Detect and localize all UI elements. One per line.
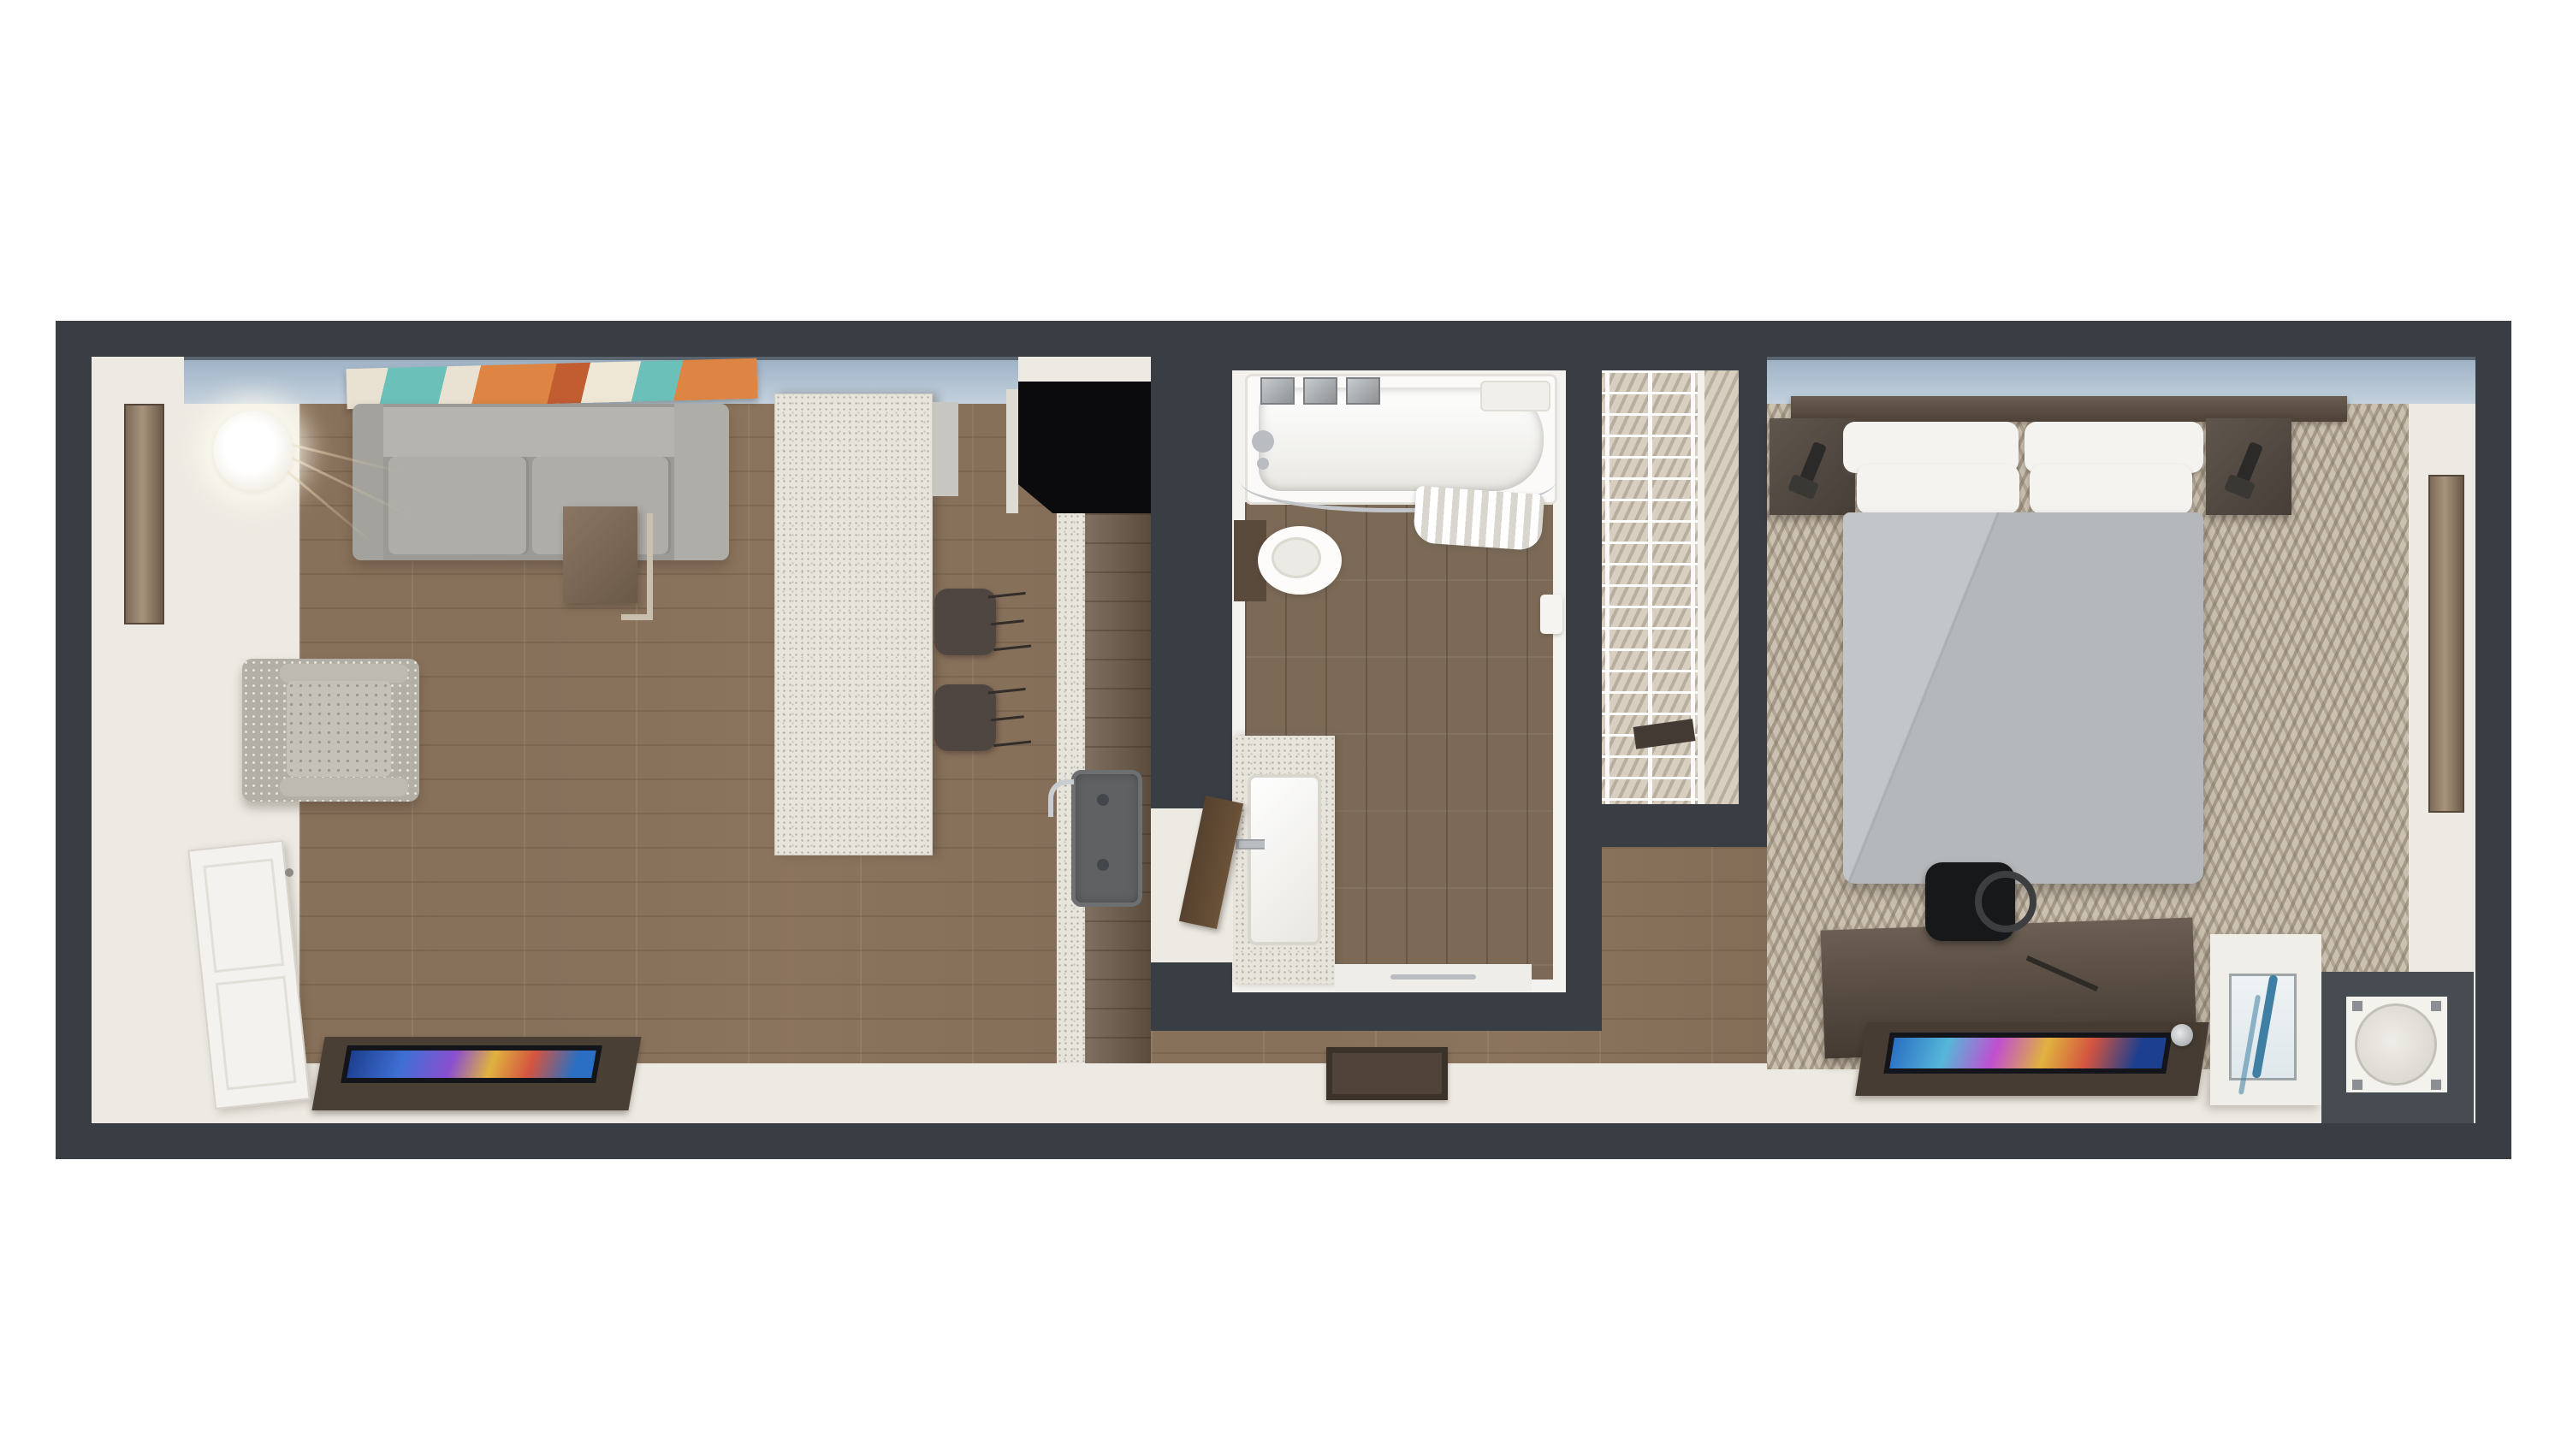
vanity-faucet-icon <box>1239 841 1265 848</box>
bedroom-tv-screen <box>1883 1033 2173 1074</box>
accent-armchair <box>242 659 419 802</box>
stool-legs <box>987 686 1031 749</box>
armchair-arm <box>280 778 408 796</box>
kitchen-island <box>774 394 933 855</box>
niche-interior <box>2346 997 2447 1092</box>
toilet <box>1258 526 1342 595</box>
reading-lamp-icon <box>1798 441 1827 488</box>
desk-chair <box>1925 862 2015 941</box>
kitchen-sink <box>1071 770 1142 907</box>
closet-divider <box>1698 370 1704 804</box>
floor-plan <box>56 321 2511 1159</box>
bench <box>2210 934 2321 1105</box>
fridge-counter-edge <box>1006 389 1018 513</box>
round-appliance-top <box>2355 1003 2437 1086</box>
living-tv-screen <box>341 1045 602 1083</box>
bar-stool <box>934 684 996 751</box>
kitchen-faucet-icon <box>1048 779 1074 817</box>
sofa-right-arm <box>674 404 729 560</box>
chrome-tray <box>1303 377 1337 405</box>
appliance-niche <box>2321 972 2474 1123</box>
armchair-arm <box>280 664 408 683</box>
nightstand-right <box>2206 418 2291 515</box>
tub-soap-ledge <box>1480 381 1550 411</box>
bar-stool <box>934 589 996 655</box>
door-handle <box>285 868 293 877</box>
nightstand-left <box>1770 418 1855 515</box>
screenshot-canvas <box>0 0 2567 1456</box>
vanity-counter <box>1234 736 1335 984</box>
entry-door-mat <box>1326 1047 1448 1100</box>
paper-holder <box>1540 595 1562 634</box>
floor-lamp <box>213 411 293 491</box>
king-bed <box>1843 422 2203 884</box>
island-side-panel <box>933 402 958 496</box>
left-wall-mirror <box>124 404 164 624</box>
stool-legs <box>987 590 1031 654</box>
sofa-back-cushion <box>358 407 724 457</box>
side-table <box>563 506 637 603</box>
chrome-tray <box>1346 377 1380 405</box>
right-wall-mirror <box>2428 475 2464 813</box>
door-knob-icon <box>2171 1024 2193 1046</box>
chrome-tray <box>1260 377 1295 405</box>
vanity-sink-basin <box>1248 774 1321 945</box>
towel-bar <box>1390 974 1476 980</box>
pillow <box>1857 465 2019 514</box>
reading-lamp-icon <box>2234 441 2263 488</box>
refrigerator <box>1018 382 1151 513</box>
sofa <box>353 404 729 560</box>
pillow <box>2030 465 2192 514</box>
duvet <box>1843 512 2203 884</box>
armchair-cushion <box>287 681 391 777</box>
shower-curtain <box>1413 486 1544 551</box>
blue-abstract-art <box>2229 974 2297 1080</box>
sofa-seat-cushion <box>388 457 529 554</box>
closet-interior <box>1602 370 1739 804</box>
